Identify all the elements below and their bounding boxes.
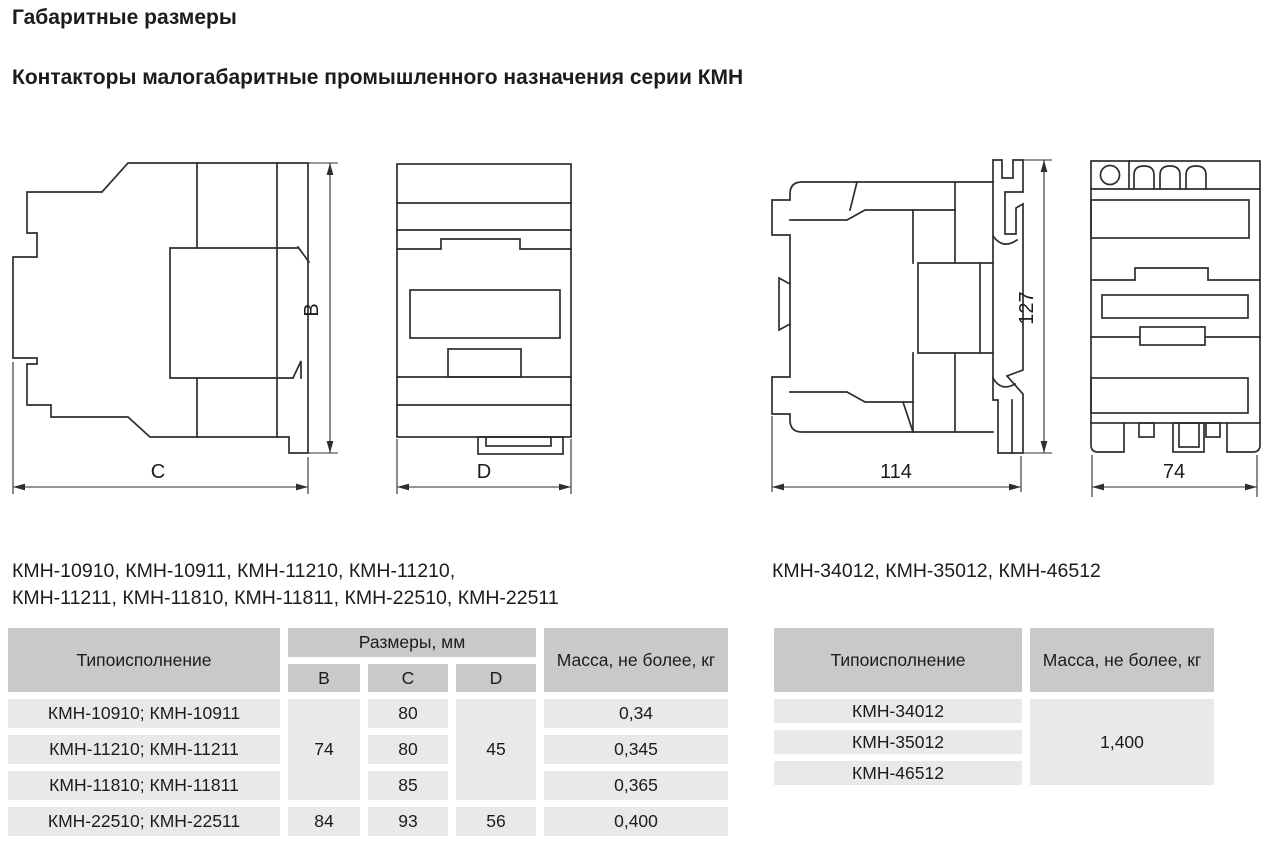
small-series-side-view-drawing: B C	[8, 158, 340, 503]
large-series-model-list: КМН-34012, КМН-35012, КМН-46512	[772, 558, 1101, 585]
dimension-127: 127	[1015, 160, 1052, 453]
large-series-side-view-drawing: 127 114	[765, 148, 1060, 503]
cell-type: КМН-10910; КМН-10911	[8, 699, 280, 728]
cell-mass: 0,365	[544, 771, 728, 800]
table-row: КМН-34012 1,400	[774, 699, 1214, 723]
small-series-front-view-drawing: D	[393, 158, 585, 503]
page-subtitle: Контакторы малогабаритные промышленного …	[12, 66, 743, 90]
cell-d: 56	[456, 807, 536, 836]
page-title: Габаритные размеры	[12, 6, 237, 30]
contactor-outline	[772, 182, 993, 432]
col-header-b: B	[288, 664, 360, 692]
model-list-line: КМН-10910, КМН-10911, КМН-11210, КМН-112…	[12, 558, 559, 585]
contactor-outline	[13, 163, 309, 453]
cell-c: 85	[368, 771, 448, 800]
terminal-hole	[1101, 166, 1120, 185]
model-list-line: КМН-34012, КМН-35012, КМН-46512	[772, 558, 1101, 585]
dim-label-b: B	[301, 303, 323, 316]
contactor-outline	[397, 164, 571, 454]
cell-mass-merged: 1,400	[1030, 699, 1214, 785]
cell-type: КМН-11210; КМН-11211	[8, 735, 280, 764]
cell-c: 80	[368, 699, 448, 728]
model-list-line: КМН-11211, КМН-11810, КМН-11811, КМН-225…	[12, 585, 559, 612]
large-series-mass-table: Типоисполнение Масса, не более, кг КМН-3…	[766, 621, 1222, 792]
dimension-d: D	[397, 439, 571, 494]
col-header-type: Типоисполнение	[8, 628, 280, 692]
dimension-114: 114	[772, 416, 1021, 492]
cell-type: КМН-11810; КМН-11811	[8, 771, 280, 800]
cell-mass: 0,345	[544, 735, 728, 764]
cell-type: КМН-22510; КМН-22511	[8, 807, 280, 836]
dim-label-127: 127	[1016, 291, 1038, 324]
table-header-row: Типоисполнение Масса, не более, кг	[774, 628, 1214, 692]
dimension-c: C	[13, 362, 308, 494]
dim-label-d: D	[477, 461, 491, 483]
cell-c: 80	[368, 735, 448, 764]
cell-type: КМН-46512	[774, 761, 1022, 785]
col-header-d: D	[456, 664, 536, 692]
col-header-mass: Масса, не более, кг	[544, 628, 728, 692]
small-series-model-list: КМН-10910, КМН-10911, КМН-11210, КМН-112…	[12, 558, 559, 612]
table-row: КМН-11210; КМН-11211 80 0,345	[8, 735, 728, 764]
large-series-front-view-drawing: 74	[1086, 155, 1271, 503]
table-row: КМН-22510; КМН-22511 84 93 56 0,400	[8, 807, 728, 836]
cell-b-merged: 74	[288, 699, 360, 800]
cell-mass: 0,400	[544, 807, 728, 836]
cell-d-merged: 45	[456, 699, 536, 800]
contactor-outline	[1091, 161, 1260, 452]
col-header-dims-group: Размеры, мм	[288, 628, 536, 657]
dimension-74: 74	[1092, 455, 1257, 497]
dimension-b: B	[301, 163, 338, 453]
cell-c: 93	[368, 807, 448, 836]
dim-label-114: 114	[880, 461, 912, 483]
cell-mass: 0,34	[544, 699, 728, 728]
cell-b: 84	[288, 807, 360, 836]
col-header-mass: Масса, не более, кг	[1030, 628, 1214, 692]
small-series-dimensions-table: Типоисполнение Размеры, мм Масса, не бол…	[0, 621, 736, 843]
table-row: КМН-10910; КМН-10911 74 80 45 0,34	[8, 699, 728, 728]
table-header-row: Типоисполнение Размеры, мм Масса, не бол…	[8, 628, 728, 657]
cell-type: КМН-34012	[774, 699, 1022, 723]
col-header-type: Типоисполнение	[774, 628, 1022, 692]
col-header-c: C	[368, 664, 448, 692]
dim-label-74: 74	[1163, 461, 1185, 483]
table-row: КМН-11810; КМН-11811 85 0,365	[8, 771, 728, 800]
cell-type: КМН-35012	[774, 730, 1022, 754]
dim-label-c: C	[151, 461, 165, 483]
